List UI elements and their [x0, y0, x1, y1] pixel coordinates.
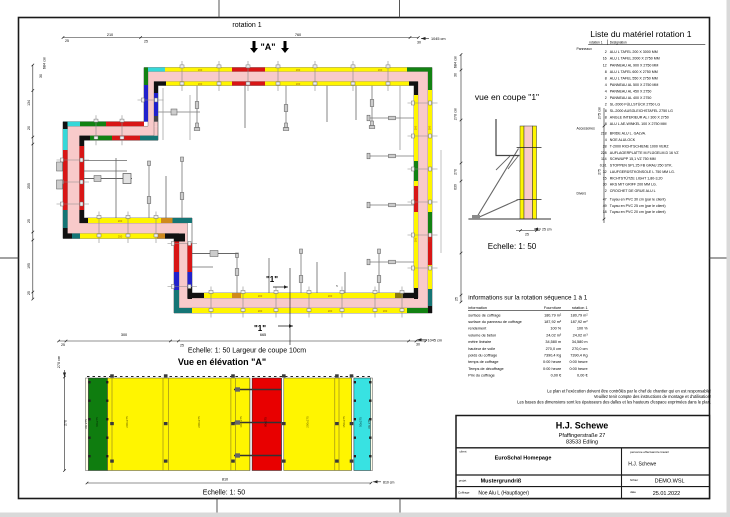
svg-text:T-2000 RICHTSCHIENE 1000 VERZ: T-2000 RICHTSCHIENE 1000 VERZ — [610, 144, 670, 148]
svg-text:218: 218 — [601, 132, 607, 136]
svg-text:mètre linéaire: mètre linéaire — [468, 340, 491, 344]
svg-text:Veuillez tenir compte des inst: Veuillez tenir compte des instructions d… — [594, 394, 711, 399]
svg-text:Mustergrundriß: Mustergrundriß — [481, 479, 522, 485]
svg-text:1045 cm: 1045 cm — [428, 338, 443, 342]
svg-text:HKS MIT GRIFF 200 MM LG.: HKS MIT GRIFF 200 MM LG. — [610, 183, 657, 187]
svg-text:200: 200 — [414, 237, 418, 242]
svg-text:30: 30 — [416, 342, 420, 346]
svg-text:49: 49 — [603, 204, 607, 208]
svg-text:200: 200 — [296, 68, 301, 72]
svg-text:rotation 1: rotation 1 — [572, 306, 588, 310]
svg-text:"1": "1" — [266, 275, 278, 284]
svg-text:28: 28 — [603, 144, 607, 148]
svg-text:Le plan et l'exécution doivent: Le plan et l'exécution doivent être cont… — [547, 388, 711, 393]
svg-text:AUFLAGERPLATTE M.FLÜGELM.D 16: AUFLAGERPLATTE M.FLÜGELM.D 16 VZ — [610, 151, 680, 155]
svg-text:200: 200 — [198, 82, 203, 86]
svg-text:ALU L TAFEL 2000 X 2750 MM: ALU L TAFEL 2000 X 2750 MM — [610, 57, 660, 61]
svg-text:200: 200 — [328, 294, 333, 298]
svg-text:temps de coffrage: temps de coffrage — [468, 360, 498, 364]
svg-text:SL-2000 FÜLLSTÜCK 2750 LG: SL-2000 FÜLLSTÜCK 2750 LG — [610, 103, 661, 107]
svg-text:8: 8 — [605, 109, 607, 113]
svg-text:60x275: 60x275 — [95, 417, 99, 427]
svg-text:SL-2000 AUSGLEICHSTAFEL 2750 L: SL-2000 AUSGLEICHSTAFEL 2750 LG — [610, 109, 673, 113]
svg-text:20: 20 — [27, 126, 31, 130]
svg-text:47: 47 — [603, 198, 607, 202]
svg-text:200: 200 — [118, 235, 123, 239]
svg-text:0,91: 0,91 — [600, 164, 607, 168]
svg-text:H.J. Schewe: H.J. Schewe — [556, 421, 609, 431]
svg-text:2: 2 — [605, 189, 607, 193]
svg-text:810 cm: 810 cm — [383, 480, 395, 484]
svg-text:16: 16 — [603, 57, 607, 61]
svg-text:Echelle: 1: 50: Echelle: 1: 50 — [203, 490, 246, 497]
svg-text:7390,4 Kg: 7390,4 Kg — [544, 353, 561, 357]
svg-text:270 cm: 270 cm — [57, 356, 61, 368]
svg-text:Echelle: 1: 50: Echelle: 1: 50 — [488, 242, 537, 251]
svg-text:270,0 cm: 270,0 cm — [572, 347, 588, 351]
svg-text:12: 12 — [603, 63, 607, 67]
svg-text:270: 270 — [64, 420, 68, 426]
svg-text:684 cm: 684 cm — [43, 57, 47, 69]
svg-text:200: 200 — [428, 125, 432, 130]
svg-text:30: 30 — [417, 41, 421, 45]
svg-text:200: 200 — [118, 219, 123, 223]
svg-text:Noe Alu L (Hauptlager): Noe Alu L (Hauptlager) — [478, 491, 529, 497]
svg-text:684 cm: 684 cm — [454, 56, 458, 68]
svg-text:134: 134 — [27, 100, 31, 106]
svg-text:Temps de décoffrage: Temps de décoffrage — [468, 367, 503, 371]
svg-text:30: 30 — [454, 73, 458, 77]
svg-text:informations sur la rotation: informations sur la rotation séquence 1 … — [468, 295, 588, 302]
svg-text:50x275: 50x275 — [359, 417, 363, 427]
svg-text:228: 228 — [601, 151, 607, 155]
svg-text:PANNEAU AL 400 X 2750: PANNEAU AL 400 X 2750 — [610, 96, 652, 100]
svg-text:0,00 €: 0,00 € — [551, 373, 562, 377]
svg-text:NOE ALULOCK: NOE ALULOCK — [610, 138, 636, 142]
svg-text:RICHTSTÜTZE LIGHT 1,80-3,20: RICHTSTÜTZE LIGHT 1,80-3,20 — [610, 176, 663, 180]
svg-text:0:00 heure: 0:00 heure — [569, 367, 587, 371]
svg-text:25: 25 — [27, 219, 31, 223]
svg-text:83533 Edling: 83533 Edling — [566, 440, 598, 446]
svg-text:25: 25 — [27, 291, 31, 295]
svg-text:187,92 m²: 187,92 m² — [544, 320, 562, 324]
svg-text:200x275: 200x275 — [125, 416, 129, 428]
svg-text:Tuyau en PVC 25 cm (par le cli: Tuyau en PVC 25 cm (par le client) — [610, 204, 666, 208]
svg-text:EuroSchal Homepage: EuroSchal Homepage — [495, 456, 552, 462]
svg-text:4: 4 — [605, 89, 607, 93]
svg-text:PANNEAU AL 450 X 2750: PANNEAU AL 450 X 2750 — [610, 89, 652, 93]
svg-text:projet: projet — [459, 479, 467, 483]
svg-text:25: 25 — [65, 39, 69, 43]
svg-text:25.01.2022: 25.01.2022 — [653, 491, 681, 497]
svg-text:25: 25 — [61, 343, 65, 347]
svg-text:150x275: 150x275 — [342, 416, 346, 428]
svg-text:personne effectuant le travail: personne effectuant le travail — [630, 450, 669, 454]
svg-text:114: 114 — [601, 157, 607, 161]
svg-text:760: 760 — [295, 33, 301, 37]
svg-text:0:00 heure: 0:00 heure — [543, 360, 561, 364]
svg-text:180,79 m²: 180,79 m² — [570, 313, 588, 317]
svg-text:Divers: Divers — [577, 192, 587, 196]
svg-text:rotation 1: rotation 1 — [232, 22, 261, 29]
svg-text:8: 8 — [605, 70, 607, 74]
svg-text:30: 30 — [603, 183, 607, 187]
svg-text:AE 275: AE 275 — [84, 419, 88, 429]
svg-text:ALU L AE-WINKEL 100 X 2750 MM: ALU L AE-WINKEL 100 X 2750 MM — [610, 122, 667, 126]
svg-text:200: 200 — [258, 309, 263, 313]
svg-text:100 %: 100 % — [577, 327, 588, 331]
svg-text:H.J. Schewe: H.J. Schewe — [628, 462, 656, 468]
svg-text:0,00 €: 0,00 € — [577, 373, 588, 377]
svg-text:2: 2 — [605, 50, 607, 54]
svg-text:200: 200 — [414, 125, 418, 130]
svg-text:LAUFGERÜSTKONSOLE L 750 MM LG.: LAUFGERÜSTKONSOLE L 750 MM LG. — [610, 170, 675, 174]
svg-text:255: 255 — [27, 183, 31, 189]
svg-text:30: 30 — [39, 74, 43, 78]
svg-text:810: 810 — [222, 478, 228, 482]
svg-text:270: 270 — [454, 169, 458, 175]
svg-text:BRIDE ALU L. GALVA.: BRIDE ALU L. GALVA. — [610, 132, 646, 136]
svg-text:surface de coffrage: surface de coffrage — [468, 313, 500, 317]
svg-text:Accessoires: Accessoires — [577, 127, 596, 131]
svg-text:4: 4 — [605, 138, 607, 142]
svg-text:8: 8 — [605, 76, 607, 80]
svg-text:25: 25 — [525, 233, 529, 237]
svg-text:180,79 m²: 180,79 m² — [544, 313, 562, 317]
svg-text:200x275: 200x275 — [306, 416, 310, 428]
svg-text:ANGLE INTERIEUR AL I 300 X 275: ANGLE INTERIEUR AL I 300 X 2750 — [610, 116, 669, 120]
svg-text:100 %: 100 % — [550, 327, 561, 331]
svg-text:200x275: 200x275 — [197, 416, 201, 428]
svg-text:270,0 cm: 270,0 cm — [546, 347, 562, 351]
svg-text:rotation 1: rotation 1 — [589, 40, 603, 44]
svg-text:18: 18 — [603, 210, 607, 214]
svg-text:200: 200 — [258, 294, 263, 298]
svg-text:SCHWUPP 15,1 VZ 750 MM: SCHWUPP 15,1 VZ 750 MM — [610, 157, 656, 161]
svg-text:STOPPEN SPL 25 FB GRAU 250 STK: STOPPEN SPL 25 FB GRAU 250 STK. — [610, 164, 673, 168]
svg-text:7390,4 Kg: 7390,4 Kg — [570, 353, 587, 357]
svg-text:surface du panneau de coffrage: surface du panneau de coffrage — [468, 320, 522, 324]
svg-text:Tuyau en PVC 30 cm (par le cli: Tuyau en PVC 30 cm (par le client) — [610, 198, 666, 202]
svg-text:DEMO.WSL: DEMO.WSL — [655, 479, 685, 485]
svg-text:275: 275 — [598, 169, 602, 175]
svg-text:hauteur de voile: hauteur de voile — [468, 347, 495, 351]
svg-text:195: 195 — [27, 263, 31, 269]
svg-text:34,580 m: 34,580 m — [545, 340, 561, 344]
svg-text:187,92 m²: 187,92 m² — [570, 320, 588, 324]
svg-text:24,02 m³: 24,02 m³ — [573, 333, 589, 337]
svg-text:100x275: 100x275 — [239, 416, 243, 428]
svg-text:8: 8 — [605, 122, 607, 126]
svg-text:fichier: fichier — [630, 478, 638, 482]
svg-text:4: 4 — [605, 83, 607, 87]
svg-text:2: 2 — [605, 103, 607, 107]
svg-text:90x275: 90x275 — [264, 417, 268, 427]
svg-text:200: 200 — [428, 237, 432, 242]
svg-text:15: 15 — [603, 176, 607, 180]
svg-text:date: date — [630, 490, 636, 494]
svg-text:volume de béton: volume de béton — [468, 333, 496, 337]
svg-text:Tuyau en PVC 20 cm (par le cli: Tuyau en PVC 20 cm (par le client) — [610, 210, 666, 214]
svg-text:ALU L TAFEL 550 X 2750 MM: ALU L TAFEL 550 X 2750 MM — [610, 76, 658, 80]
svg-text:poids du coffrage: poids du coffrage — [468, 353, 497, 357]
svg-text:rendement: rendement — [468, 327, 487, 331]
svg-text:ALU L TAFEL 200 X 3000 MM: ALU L TAFEL 200 X 3000 MM — [610, 50, 658, 54]
svg-text:25 cm: 25 cm — [542, 228, 552, 232]
svg-text:vue en coupe "1": vue en coupe "1" — [475, 92, 539, 102]
svg-text:Désignation: Désignation — [610, 40, 627, 44]
svg-text:24,02 m³: 24,02 m³ — [546, 333, 562, 337]
svg-text:Echelle: 1: 50 Largeur de co: Echelle: 1: 50 Largeur de coupe 10cm — [188, 348, 306, 355]
svg-text:639: 639 — [454, 184, 458, 190]
svg-text:200: 200 — [328, 309, 333, 313]
svg-text:Coffrage: Coffrage — [458, 491, 470, 495]
svg-text:200: 200 — [383, 309, 388, 313]
svg-text:0:00 heure: 0:00 heure — [543, 367, 561, 371]
svg-text:Vue en élévation "A": Vue en élévation "A" — [178, 357, 266, 367]
svg-text:CROCHET DE GRUE ALU L: CROCHET DE GRUE ALU L — [610, 189, 656, 193]
svg-text:25: 25 — [455, 297, 459, 301]
svg-text:25: 25 — [144, 40, 148, 44]
svg-text:"A": "A" — [260, 42, 275, 52]
svg-text:Pfaffingerstraße 27: Pfaffingerstraße 27 — [559, 433, 606, 439]
svg-text:ALU L TAFEL 600 X 2750 MM: ALU L TAFEL 600 X 2750 MM — [610, 70, 658, 74]
svg-text:PANNEAU AL 900 X 2750 MM: PANNEAU AL 900 X 2750 MM — [610, 63, 659, 67]
svg-text:32: 32 — [603, 170, 607, 174]
svg-text:0:00 heure: 0:00 heure — [569, 360, 587, 364]
svg-text:"1": "1" — [254, 324, 266, 333]
svg-text:200: 200 — [378, 68, 383, 72]
svg-text:PANNEAU AL 500 X 2750 MM: PANNEAU AL 500 X 2750 MM — [610, 83, 659, 87]
svg-text:270 cm: 270 cm — [454, 108, 458, 120]
svg-text:665: 665 — [260, 333, 266, 337]
svg-text:8: 8 — [605, 116, 607, 120]
svg-text:1045 cm: 1045 cm — [431, 37, 446, 41]
svg-text:Prix du coffrage: Prix du coffrage — [468, 373, 495, 377]
svg-text:information: information — [468, 306, 487, 310]
svg-text:Fourniture: Fourniture — [544, 306, 561, 310]
svg-text:2: 2 — [605, 96, 607, 100]
svg-text:Panneaux: Panneaux — [577, 47, 593, 51]
svg-text:AE 275: AE 275 — [367, 419, 371, 429]
svg-text:Les bases des dimensions sont: Les bases des dimensions sont les épaiss… — [517, 400, 711, 405]
svg-text:200: 200 — [296, 82, 301, 86]
svg-text:34,580 m: 34,580 m — [572, 340, 588, 344]
svg-text:300: 300 — [121, 333, 127, 337]
svg-text:25: 25 — [180, 343, 184, 347]
svg-text:275 cm: 275 cm — [598, 107, 602, 119]
svg-text:210: 210 — [107, 33, 113, 37]
svg-text:Liste du matériel rotation 1: Liste du matériel rotation 1 — [590, 29, 691, 39]
svg-text:200: 200 — [198, 68, 203, 72]
svg-text:client: client — [460, 450, 467, 454]
